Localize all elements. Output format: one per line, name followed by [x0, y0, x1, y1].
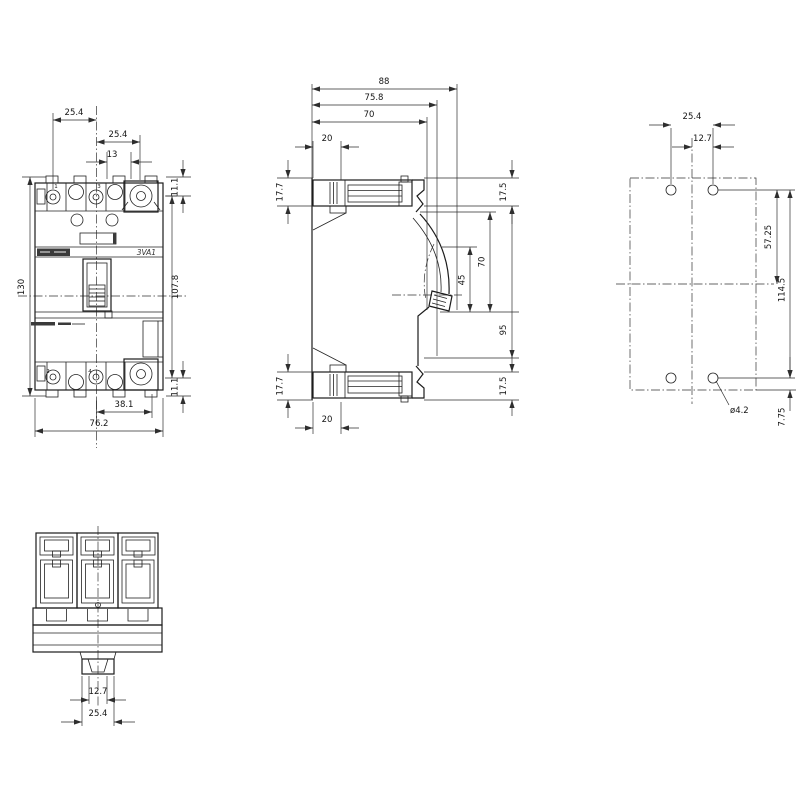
accessory-cover [143, 321, 163, 357]
top-tab [113, 176, 125, 183]
dim-label: 25.4 [89, 709, 108, 719]
dim-label: 20 [322, 415, 333, 425]
dim-label: 25.4 [65, 108, 84, 118]
dim-label: 70 [478, 257, 488, 268]
bottom-tab [74, 390, 86, 397]
dim-label: 12.7 [89, 687, 108, 697]
terminal-screw [46, 190, 60, 204]
fine-print-mark [31, 322, 55, 326]
drilling-plan-view: 25.4 12.7 57.25 114.5 7.75 ø4.2 [616, 112, 796, 426]
mounting-recess [71, 214, 83, 226]
top-tab [145, 176, 157, 183]
terminal-hole [108, 185, 123, 200]
side-view: 88 75.8 70 20 17.7 17.7 17.5 [276, 77, 520, 434]
base-plate [33, 625, 162, 652]
dim-label: 57.25 [764, 225, 774, 249]
pole-module [118, 533, 158, 608]
case-profile [412, 366, 424, 398]
dim-label: 17.5 [499, 183, 509, 202]
product-label: 3VA1 [137, 248, 156, 257]
dim-label: 25.4 [683, 112, 702, 122]
dim-label: 114.5 [778, 278, 788, 302]
terminal-number: 4 [88, 369, 92, 375]
dim-label: 13 [107, 150, 118, 160]
dim-label: 76.2 [90, 419, 109, 429]
terminal-screw [89, 190, 103, 204]
mounting-hole [666, 185, 676, 195]
terminal-hole [69, 375, 84, 390]
toggle-handle [89, 285, 105, 306]
dim-label: 11.1 [171, 178, 181, 197]
bottom-view: 12.7 25.4 [33, 526, 162, 726]
dim-label: 107.8 [171, 275, 181, 299]
front-view: 1 3 3VA1 [17, 106, 191, 448]
dim-label: 130 [17, 279, 27, 295]
bottom-tab [145, 390, 157, 397]
dim-label: 25.4 [109, 130, 128, 140]
terminal-number: 2 [46, 369, 50, 375]
terminal-hole [69, 185, 84, 200]
base-band [33, 608, 162, 625]
hole-diameter-label: ø4.2 [730, 406, 749, 416]
pole-module [77, 533, 118, 608]
dim-label: 95 [499, 325, 509, 336]
technical-drawing: 1 3 3VA1 [0, 0, 800, 800]
top-tab [74, 176, 86, 183]
dim-label: 70 [364, 110, 375, 120]
bottom-tab [46, 390, 58, 397]
terminal-hole [108, 375, 123, 390]
dim-label: 17.7 [276, 377, 286, 396]
terminal-number: 3 [97, 184, 101, 190]
top-tab [46, 176, 58, 183]
mounting-hole [708, 185, 718, 195]
pole-module [36, 533, 77, 608]
terminal-number: 1 [54, 184, 58, 190]
bottom-tab [113, 390, 125, 397]
dim-label: 11.1 [171, 378, 181, 397]
dim-label: 75.8 [365, 93, 384, 103]
fine-print-mark [58, 323, 71, 326]
mounting-hole [666, 373, 676, 383]
dim-label: 45 [458, 275, 468, 286]
dim-label: 38.1 [115, 400, 134, 410]
dim-label: 88 [379, 77, 390, 87]
dim-label: 17.7 [276, 183, 286, 202]
mounting-recess [106, 214, 118, 226]
drawing-canvas: 1 3 3VA1 [0, 0, 800, 800]
rating-window [80, 233, 116, 244]
dim-label: 7.75 [778, 408, 788, 427]
dim-label: 12.7 [693, 134, 712, 144]
dim-label: 17.5 [499, 377, 509, 396]
dim-label: 20 [322, 134, 333, 144]
case-profile [412, 180, 424, 212]
